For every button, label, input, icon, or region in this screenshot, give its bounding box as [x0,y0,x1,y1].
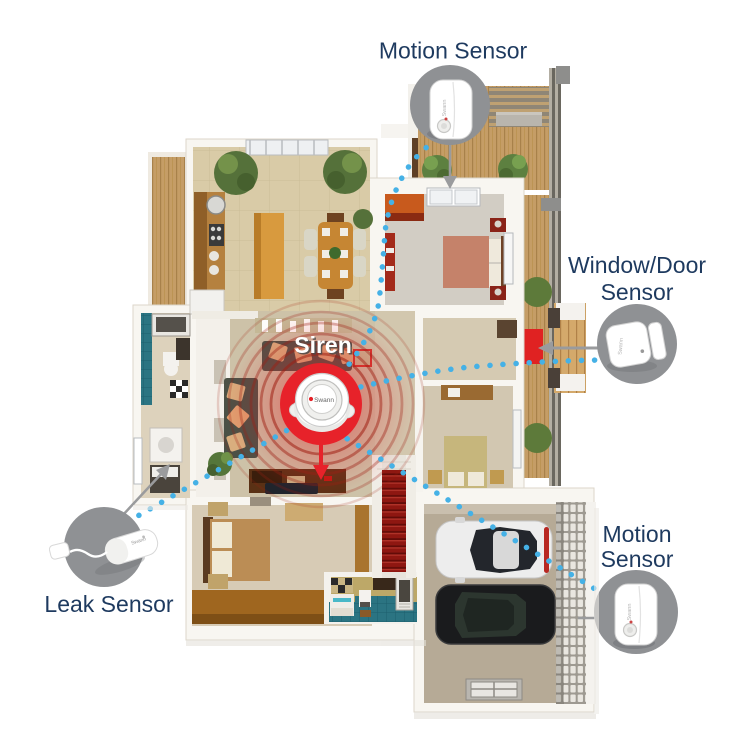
svg-text:Window/Door: Window/Door [568,252,706,278]
svg-text:Swann: Swann [314,397,334,404]
svg-text:Motion Sensor: Motion Sensor [379,38,528,64]
svg-text:Leak Sensor: Leak Sensor [44,591,173,617]
svg-text:Siren: Siren [294,332,352,358]
svg-text:Swann: Swann [627,604,633,621]
svg-text:Motion: Motion [602,521,671,547]
svg-text:Swann: Swann [442,100,448,117]
svg-text:Sensor: Sensor [601,279,674,305]
svg-text:Sensor: Sensor [601,546,674,572]
